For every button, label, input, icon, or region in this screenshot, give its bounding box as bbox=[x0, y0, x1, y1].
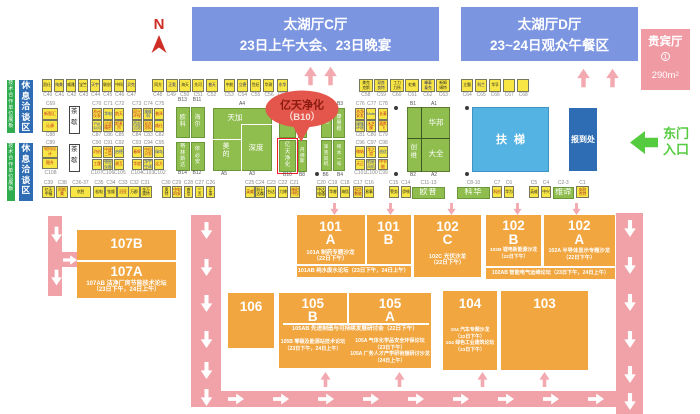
svg-text:亿天净化: 亿天净化 bbox=[280, 98, 324, 112]
svg-text:（B10）: （B10） bbox=[284, 111, 320, 123]
